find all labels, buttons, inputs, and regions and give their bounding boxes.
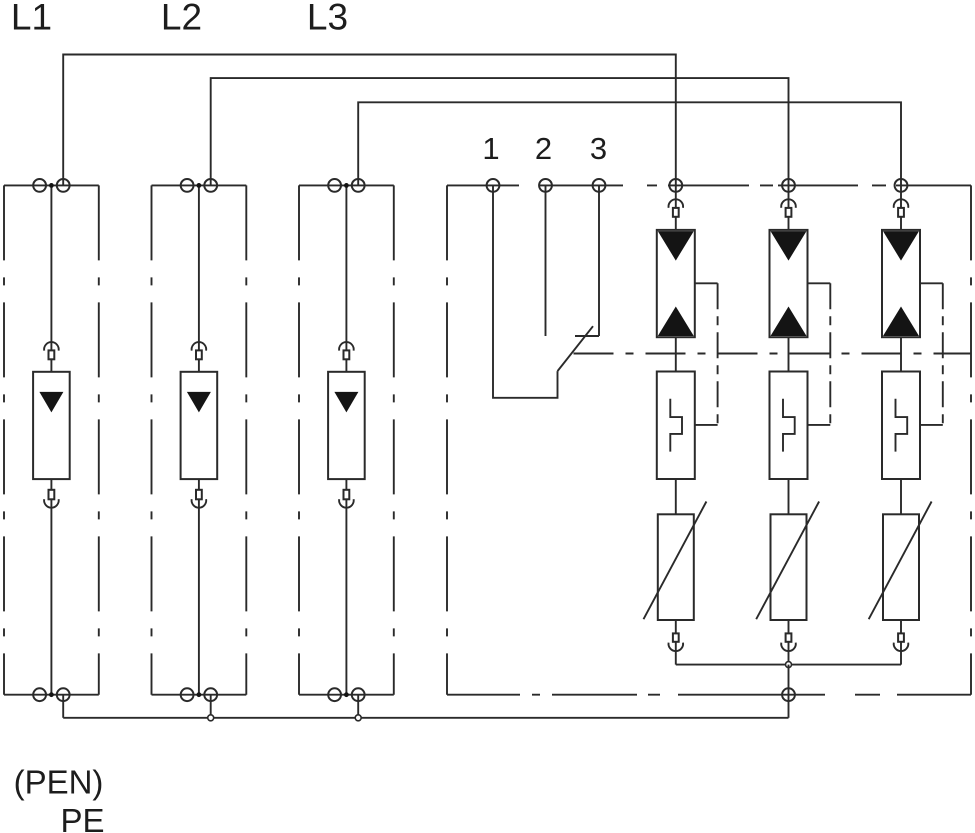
svg-text:3: 3: [590, 131, 607, 166]
svg-text:L3: L3: [307, 0, 348, 38]
svg-text:L2: L2: [161, 0, 202, 38]
svg-text:1: 1: [482, 131, 499, 166]
svg-text:(PEN): (PEN): [14, 764, 104, 801]
svg-text:L1: L1: [11, 0, 52, 38]
svg-text:PE: PE: [60, 802, 104, 833]
svg-text:2: 2: [535, 131, 552, 166]
